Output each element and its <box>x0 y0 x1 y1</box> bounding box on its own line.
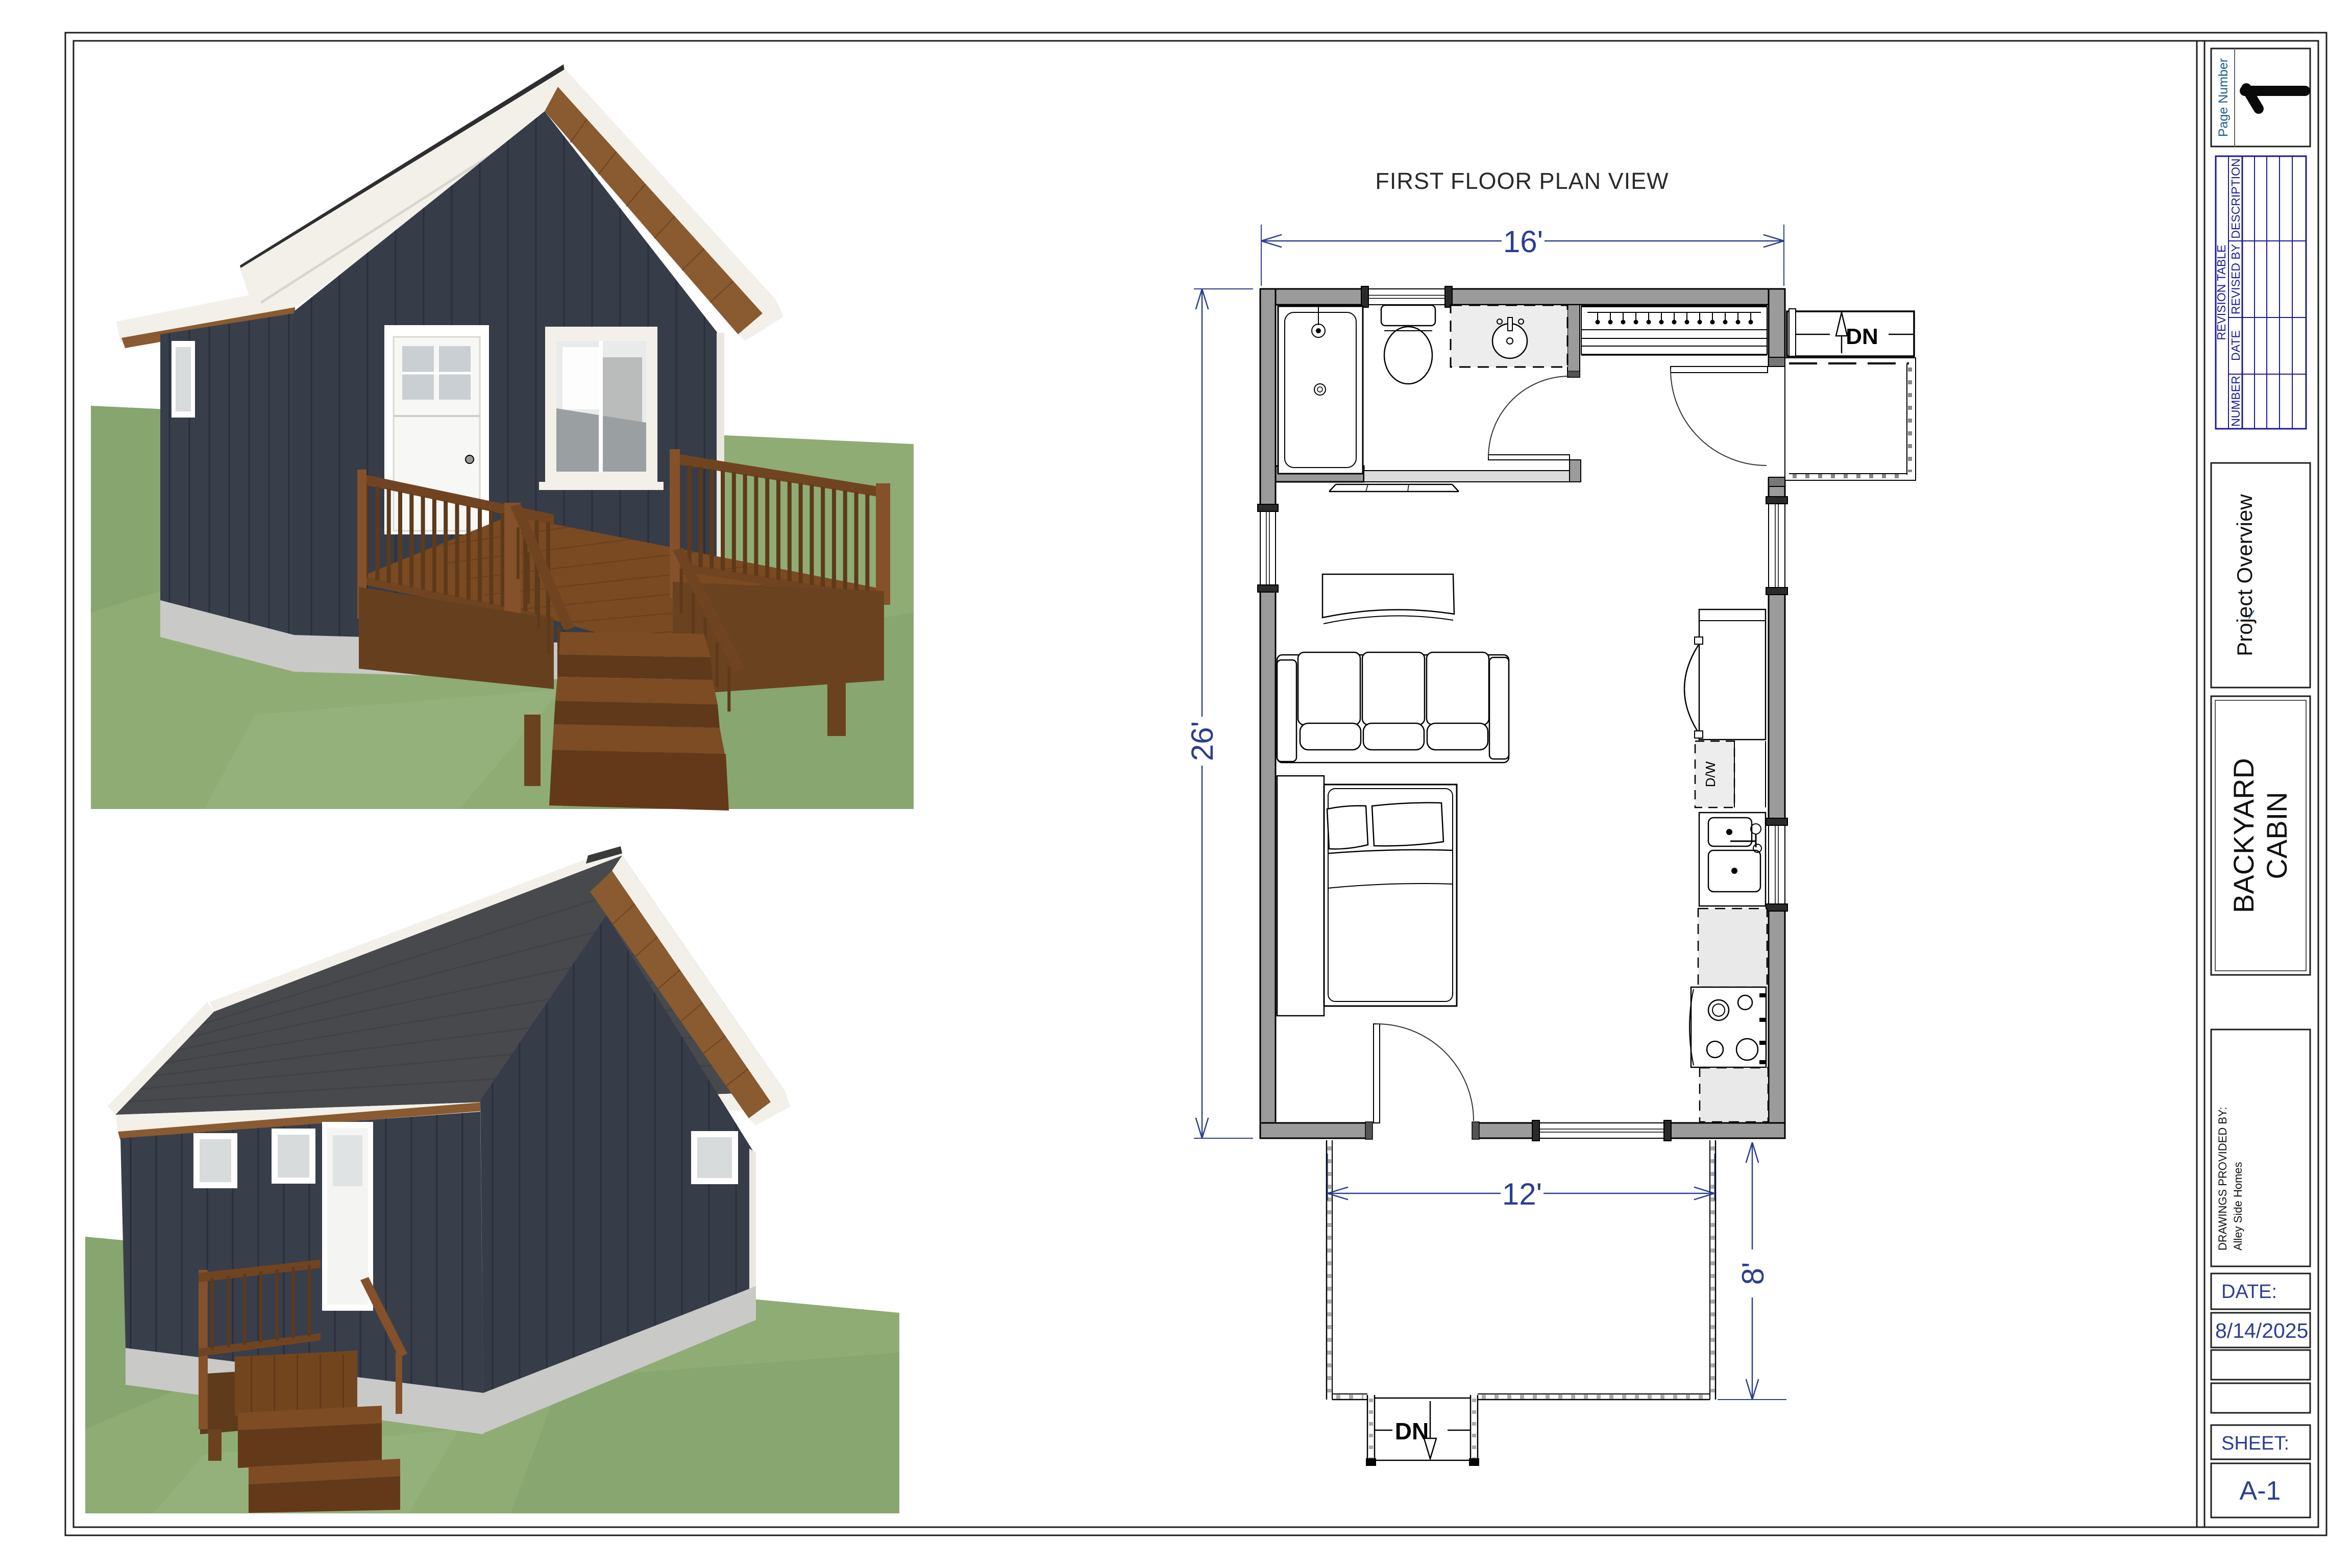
svg-text:CABIN: CABIN <box>2261 792 2293 879</box>
svg-text:DN: DN <box>1846 324 1878 349</box>
svg-text:SHEET:: SHEET: <box>2221 1433 2289 1454</box>
svg-text:DESCRIPTION: DESCRIPTION <box>2229 158 2242 238</box>
svg-text:Page Number: Page Number <box>2216 58 2231 137</box>
svg-text:REVISION TABLE: REVISION TABLE <box>2215 244 2228 340</box>
svg-text:A-1: A-1 <box>2240 1476 2281 1506</box>
svg-text:DATE: DATE <box>2229 330 2242 361</box>
svg-text:NUMBER: NUMBER <box>2229 376 2242 427</box>
svg-text:Alley Side Homes: Alley Side Homes <box>2232 1162 2244 1251</box>
svg-text:DN: DN <box>1395 1418 1429 1444</box>
svg-text:D/W: D/W <box>1703 761 1718 787</box>
svg-text:8': 8' <box>1736 1262 1770 1285</box>
svg-text:26': 26' <box>1185 721 1219 761</box>
svg-text:Project Overview: Project Overview <box>2233 494 2257 656</box>
svg-text:FIRST FLOOR PLAN VIEW: FIRST FLOOR PLAN VIEW <box>1375 168 1669 194</box>
svg-text:16': 16' <box>1503 225 1543 259</box>
svg-text:REVISED BY: REVISED BY <box>2229 244 2242 314</box>
svg-text:8/14/2025: 8/14/2025 <box>2215 1319 2308 1342</box>
svg-text:12': 12' <box>1502 1177 1542 1211</box>
svg-text:DRAWINGS PROVIDED BY:: DRAWINGS PROVIDED BY: <box>2216 1107 2229 1251</box>
svg-text:DATE:: DATE: <box>2221 1281 2277 1303</box>
svg-text:BACKYARD: BACKYARD <box>2227 758 2260 913</box>
